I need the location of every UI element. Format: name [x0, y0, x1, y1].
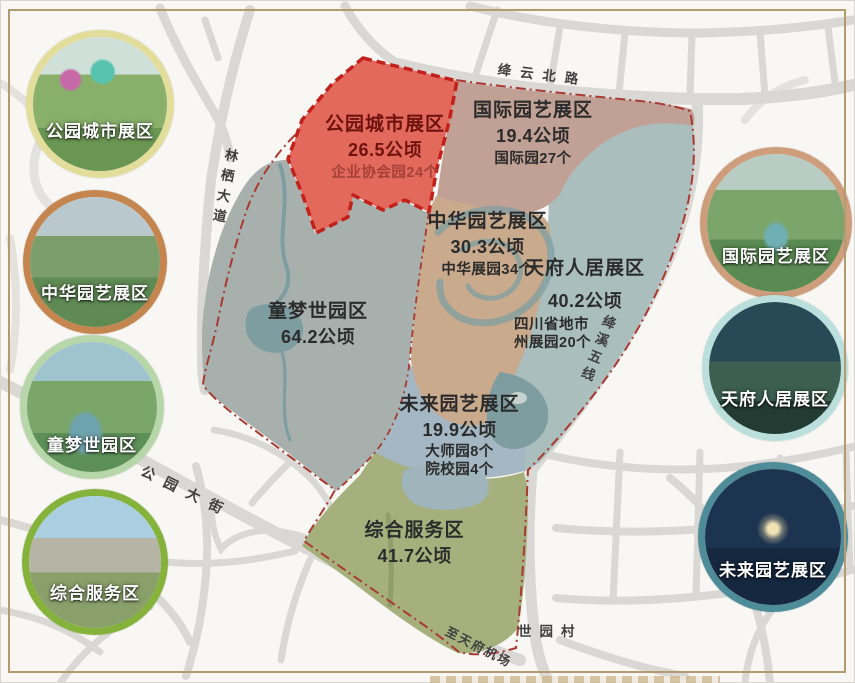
legend-circle-parkcity: 公园城市展区 — [26, 30, 174, 178]
zone-area: 30.3公顷 — [400, 236, 575, 259]
expo-map-poster: 公园城市展区 26.5公顷 企业协会园24个 国际园艺展区 19.4公顷 国际园… — [0, 0, 855, 683]
next-image-sliver — [430, 676, 720, 683]
legend-circle-guoji: 国际园艺展区 — [700, 147, 852, 299]
zone-detail: 州展园20个 — [500, 334, 670, 352]
zone-name: 综合服务区 — [342, 519, 487, 543]
zone-detail: 四川省地市 — [500, 316, 670, 334]
legend-circle-label: 童梦世园区 — [27, 431, 157, 456]
zone-label-weilai: 未来园艺展区 19.9公顷 大师园8个 院校园4个 — [382, 393, 537, 480]
legend-circle-label: 公园城市展区 — [33, 117, 167, 142]
zone-name: 童梦世园区 — [238, 300, 398, 324]
legend-circle-zonghe: 综合服务区 — [22, 489, 168, 635]
zone-label-tongmeng: 童梦世园区 64.2公顷 — [238, 300, 398, 348]
guoji-photo — [707, 154, 845, 292]
legend-circle-label: 国际园艺展区 — [707, 242, 845, 267]
zone-area: 19.9公顷 — [382, 419, 537, 442]
legend-circle-label: 中华园艺展区 — [30, 279, 160, 304]
zone-label-zonghe: 综合服务区 41.7公顷 — [342, 519, 487, 567]
legend-circle-weilai: 未来园艺展区 — [698, 462, 848, 612]
parkcity-photo — [33, 37, 167, 171]
zone-area: 41.7公顷 — [342, 545, 487, 568]
legend-circle-label: 天府人居展区 — [709, 385, 841, 410]
zone-name: 天府人居展区 — [500, 257, 670, 281]
legend-circle-label: 综合服务区 — [29, 579, 161, 604]
zone-name: 中华园艺展区 — [400, 210, 575, 234]
zone-area: 40.2公顷 — [500, 290, 670, 313]
zone-name: 未来园艺展区 — [382, 393, 537, 417]
road-label-expo-village: 世园村 — [518, 620, 583, 640]
zone-detail: 大师园8个 — [382, 443, 537, 461]
zone-detail: 院校园4个 — [382, 461, 537, 479]
legend-circle-tianfu: 天府人居展区 — [702, 295, 848, 441]
zonghe-photo — [29, 496, 161, 628]
zone-label-tianfu: 天府人居展区 40.2公顷 四川省地市 州展园20个 — [500, 257, 670, 353]
zone-detail: 国际园27个 — [448, 150, 618, 168]
zone-area: 64.2公顷 — [238, 326, 398, 349]
zhonghua-photo — [30, 197, 160, 327]
legend-circle-zhonghua: 中华园艺展区 — [23, 190, 167, 334]
tianfu-photo — [709, 302, 841, 434]
legend-circle-tongmeng: 童梦世园区 — [20, 335, 164, 479]
zone-name: 国际园艺展区 — [448, 99, 618, 123]
weilai-photo — [705, 469, 841, 605]
zone-area: 19.4公顷 — [448, 125, 618, 148]
zone-label-guoji: 国际园艺展区 19.4公顷 国际园27个 — [448, 99, 618, 168]
legend-circle-label: 未来园艺展区 — [705, 556, 841, 581]
